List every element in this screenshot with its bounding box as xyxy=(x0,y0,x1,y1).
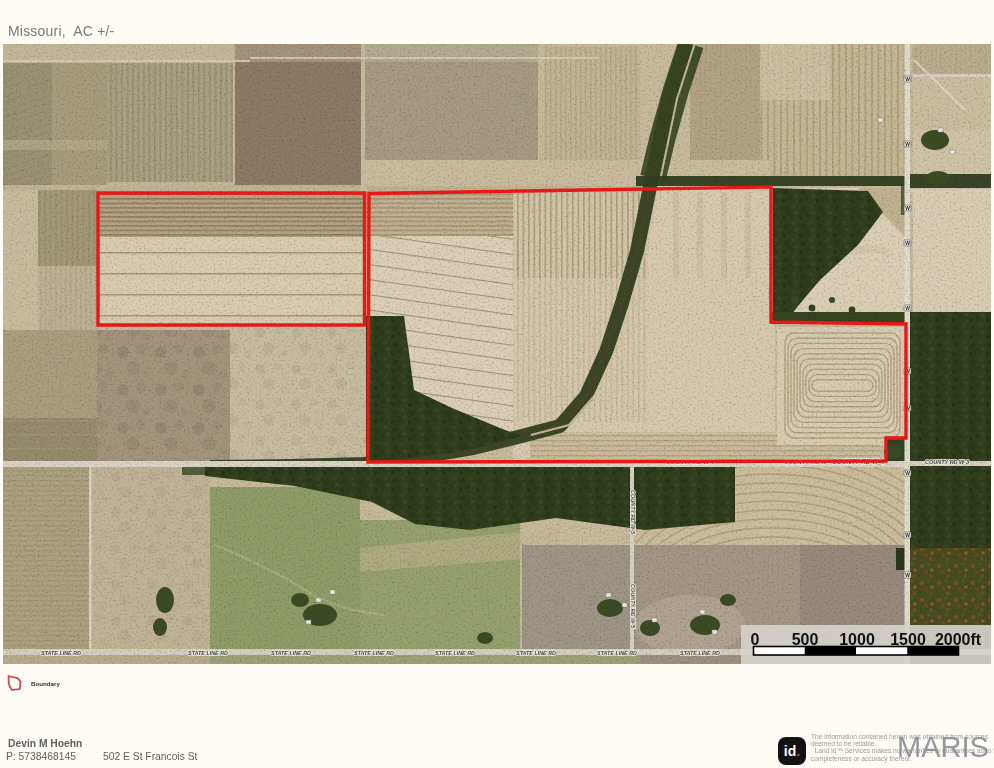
svg-text:1000: 1000 xyxy=(839,631,875,648)
svg-text:1500: 1500 xyxy=(890,631,926,648)
svg-text:500: 500 xyxy=(792,631,819,648)
svg-text:2000ft: 2000ft xyxy=(935,631,982,648)
svg-text:0: 0 xyxy=(751,631,760,648)
